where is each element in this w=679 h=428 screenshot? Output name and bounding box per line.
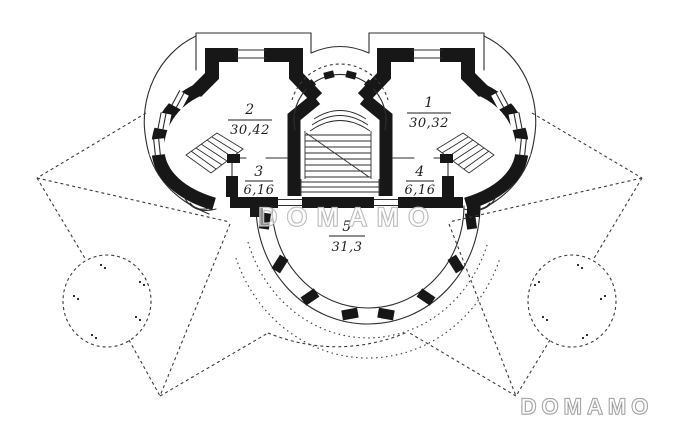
winder-stairs-right [437,133,494,173]
north-bay-left [196,46,317,98]
roof-valley-arc [268,332,408,347]
tower-window [153,112,172,131]
room-number: 4 [414,164,424,180]
room-number: 3 [254,164,263,180]
stair-direction-line [306,133,369,177]
hall-wall-right [364,99,386,196]
turret-tick-marks [73,264,145,339]
bay-end-pier-right [467,197,480,217]
north-bay-right [363,46,484,98]
room-area: 6,16 [244,183,275,198]
room-label-4: 4 6,16 [405,164,436,198]
room-area: 30,32 [409,116,449,131]
winder-stairs-left [186,133,243,173]
staircase [301,111,379,197]
window-opening [238,46,264,65]
turret-circle-left [63,255,151,347]
window-opening [414,46,440,65]
tower-window [148,138,166,156]
room-area: 6,16 [405,183,436,198]
room-label-3: 3 6,16 [244,164,275,198]
tower-window [509,112,528,131]
room-number: 2 [244,102,254,118]
room-area: 30,42 [230,123,270,138]
room-label-2: 2 30,42 [228,102,272,138]
room-label-1: 1 30,32 [407,95,451,131]
arch-outline-center [311,47,369,54]
turret-tick-marks [534,264,606,339]
turret-circle-right [528,255,616,347]
central-stair-hall [292,64,388,196]
watermark-bottom-right: DOMAMO [521,394,654,419]
tower-window [514,138,532,156]
room-area: 31,3 [332,240,363,255]
watermark-center: DOMAMO [258,202,438,232]
room-number: 1 [424,95,433,111]
floor-plan-image: 2 30,42 1 30,32 3 6,16 4 6,16 5 31,3 DOM… [0,0,679,428]
